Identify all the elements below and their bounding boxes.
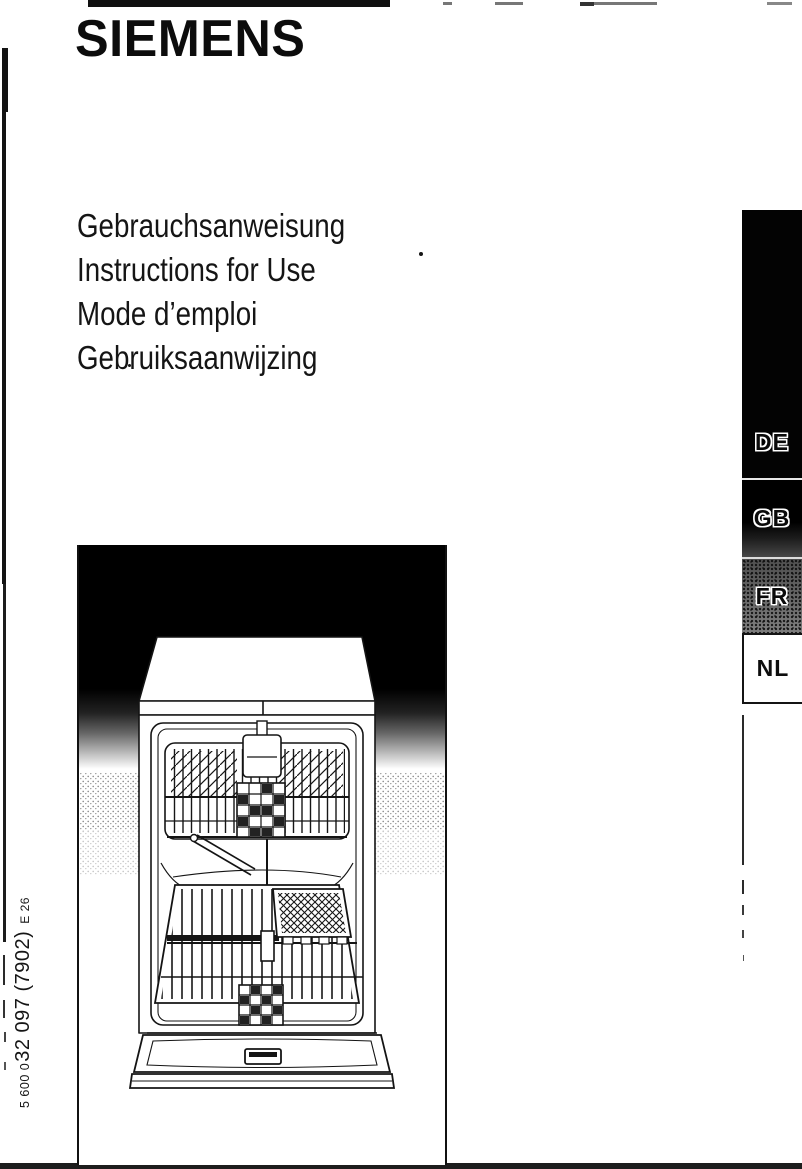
language-tab-nl-label: NL xyxy=(757,657,790,680)
language-tab-gb: GB xyxy=(742,478,802,557)
lower-cutlery-grid xyxy=(239,985,283,1025)
upper-cutlery-grid xyxy=(237,783,285,837)
cover-title-block: Gebrauchsanweisung Instructions for Use … xyxy=(77,204,345,380)
left-margin-rule xyxy=(2,112,6,584)
language-tab-fr: FR xyxy=(742,557,802,633)
top-border-dash xyxy=(495,2,523,5)
title-dutch: Gebruiksaanwijzing xyxy=(77,336,345,380)
order-code-prefix: 5 600 0 xyxy=(18,1063,32,1108)
top-border-bar xyxy=(88,0,390,7)
language-tab-fr-label: FR xyxy=(756,585,789,608)
top-border-dash xyxy=(594,2,657,5)
right-margin-dash xyxy=(742,880,744,894)
language-tab-de-label: DE xyxy=(755,431,789,454)
language-tab-nl: NL xyxy=(742,633,802,704)
right-margin-dash xyxy=(742,930,744,938)
left-margin-rule xyxy=(2,48,8,112)
top-border-dash xyxy=(443,2,452,5)
scan-speck xyxy=(419,252,423,256)
language-tab-bar: DE GB FR NL xyxy=(742,210,802,704)
top-border-dash xyxy=(580,2,594,6)
manual-cover-page: SIEMENS Gebrauchsanweisung Instructions … xyxy=(0,0,802,1169)
order-code-main: 32 097 (7902) xyxy=(12,931,35,1062)
title-german: Gebrauchsanweisung xyxy=(77,204,345,248)
order-code-vertical: 5 600 032 097 (7902)E 26 xyxy=(12,898,44,1108)
crosshatch-insert xyxy=(273,889,351,944)
dishwasher-front-open-line-art xyxy=(77,545,447,1165)
left-margin-rule xyxy=(3,584,6,942)
title-english: Instructions for Use xyxy=(77,248,345,292)
left-margin-rule xyxy=(3,955,5,985)
right-margin-dash xyxy=(742,905,744,915)
language-tab-gb-label: GB xyxy=(754,507,791,530)
order-code-suffix: E 26 xyxy=(18,897,32,924)
dishwasher-illustration xyxy=(77,545,447,1165)
open-door xyxy=(130,1033,394,1088)
right-margin-dash xyxy=(742,715,744,865)
brand-logo: SIEMENS xyxy=(75,13,305,65)
title-french: Mode d’emploi xyxy=(77,292,345,336)
left-margin-rule xyxy=(4,1062,6,1070)
left-margin-rule xyxy=(4,1032,6,1042)
right-margin-dash xyxy=(743,955,744,961)
left-margin-rule xyxy=(3,1000,5,1018)
top-border-dash xyxy=(767,2,792,5)
scan-speck xyxy=(128,364,131,367)
language-tab-de: DE xyxy=(742,210,802,478)
